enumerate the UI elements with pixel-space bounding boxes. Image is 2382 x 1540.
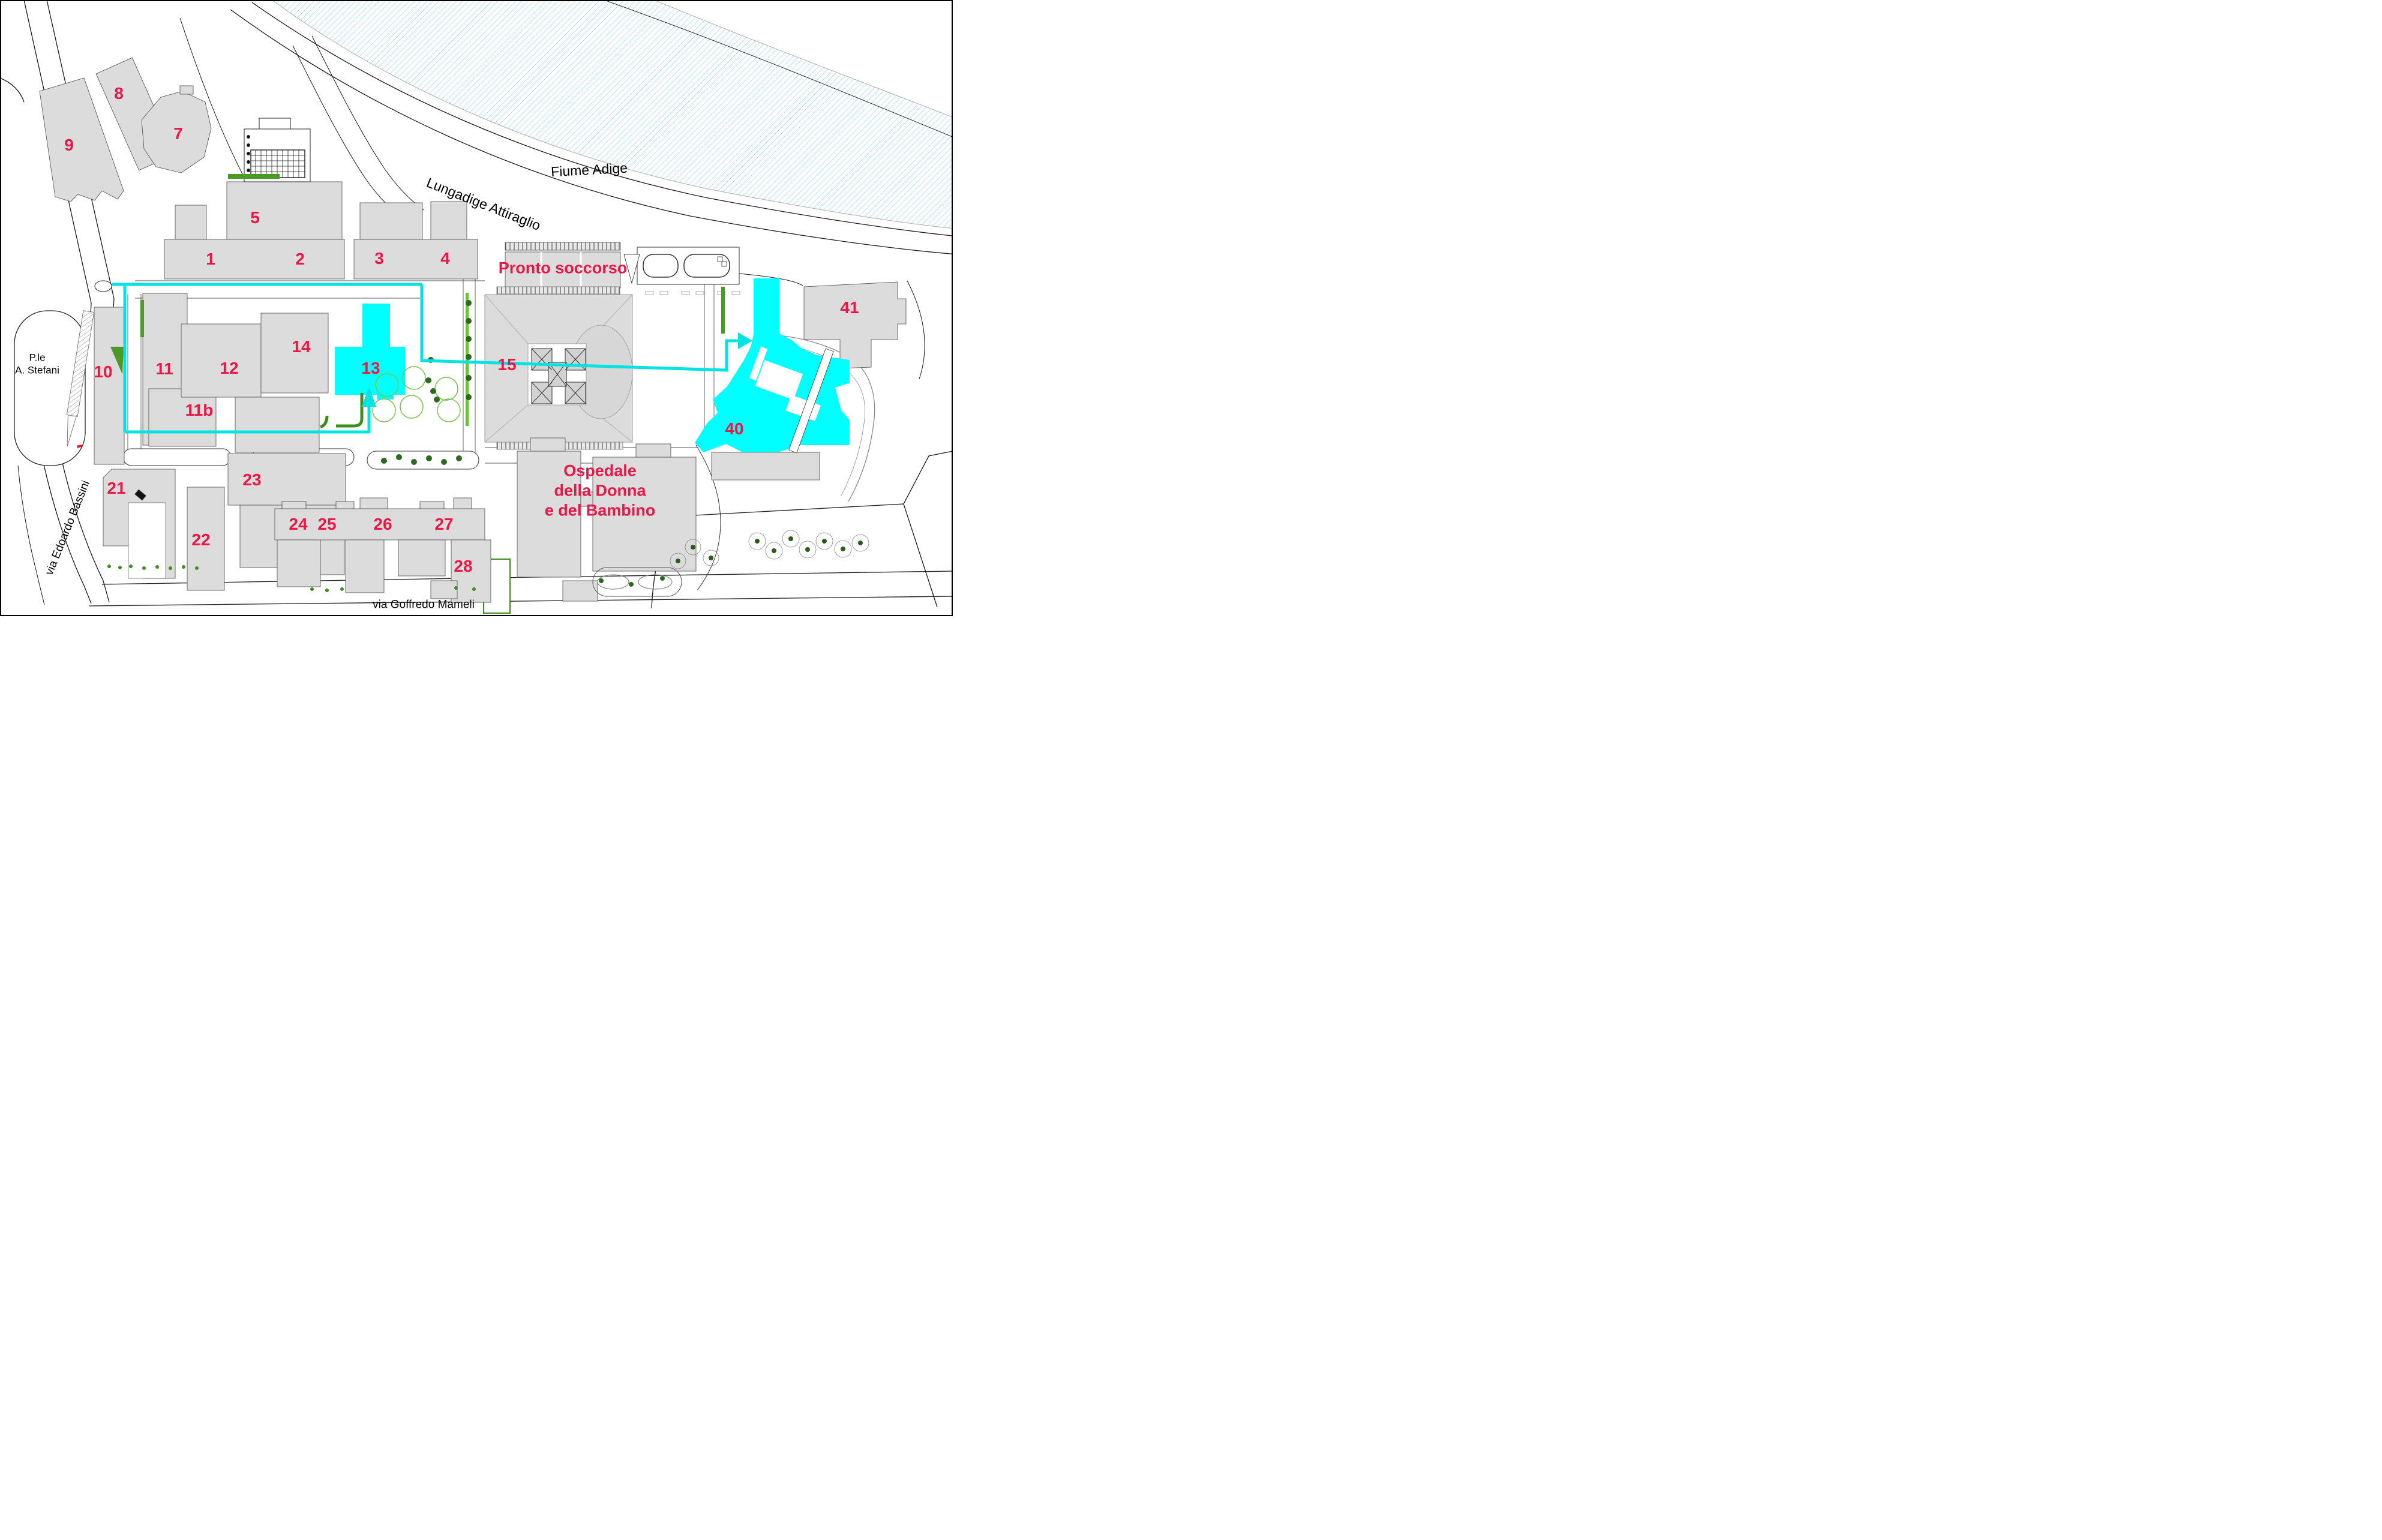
building-3-4 — [354, 239, 478, 279]
building-11b — [149, 389, 216, 446]
building-5 — [227, 182, 342, 239]
building-ospedale-donna-bambino — [517, 438, 696, 577]
building-14 — [261, 313, 328, 393]
piazza-stefani-parking — [14, 311, 94, 466]
building-1-2 — [164, 239, 344, 279]
building-pronto-soccorso — [505, 242, 640, 288]
map-canvas — [0, 0, 953, 616]
building-24-28 — [275, 498, 491, 602]
building-15 — [485, 287, 632, 449]
building-12 — [181, 324, 261, 397]
building-10 — [94, 307, 124, 464]
campus-map: 8975123410111211b14131540412122232425262… — [0, 0, 953, 616]
building-22 — [187, 487, 224, 590]
